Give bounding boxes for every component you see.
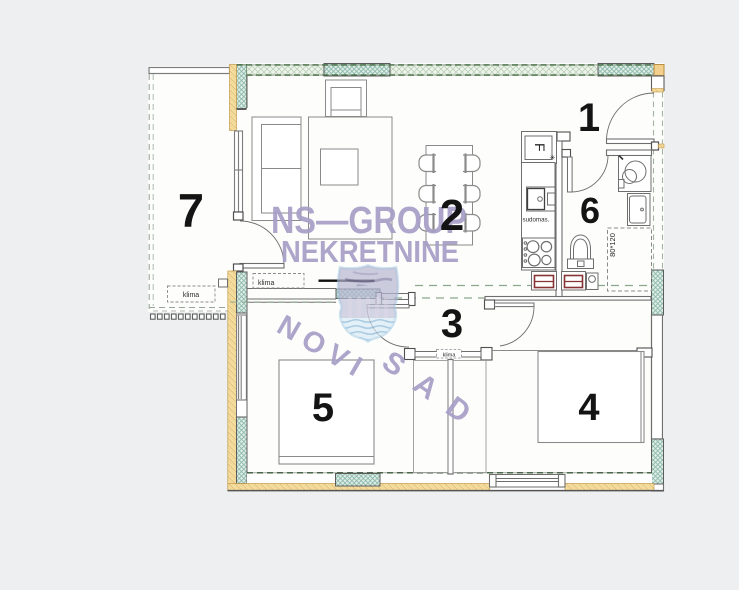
svg-text:klima: klima bbox=[443, 353, 457, 359]
svg-text:4: 4 bbox=[578, 387, 599, 429]
svg-text:6: 6 bbox=[580, 190, 600, 231]
svg-text:5: 5 bbox=[312, 386, 334, 430]
svg-text:7: 7 bbox=[178, 184, 204, 237]
svg-text:klima: klima bbox=[183, 292, 199, 299]
svg-text:1: 1 bbox=[578, 96, 600, 140]
svg-text:80*120: 80*120 bbox=[608, 233, 617, 257]
svg-text:sudomas.: sudomas. bbox=[523, 217, 550, 224]
svg-text:2: 2 bbox=[440, 191, 464, 240]
svg-text:klima: klima bbox=[258, 280, 274, 287]
svg-text:F: F bbox=[532, 143, 548, 152]
svg-text:NEKRETNINE: NEKRETNINE bbox=[281, 234, 459, 269]
svg-text:✳: ✳ bbox=[550, 154, 556, 162]
svg-text:3: 3 bbox=[441, 302, 463, 346]
